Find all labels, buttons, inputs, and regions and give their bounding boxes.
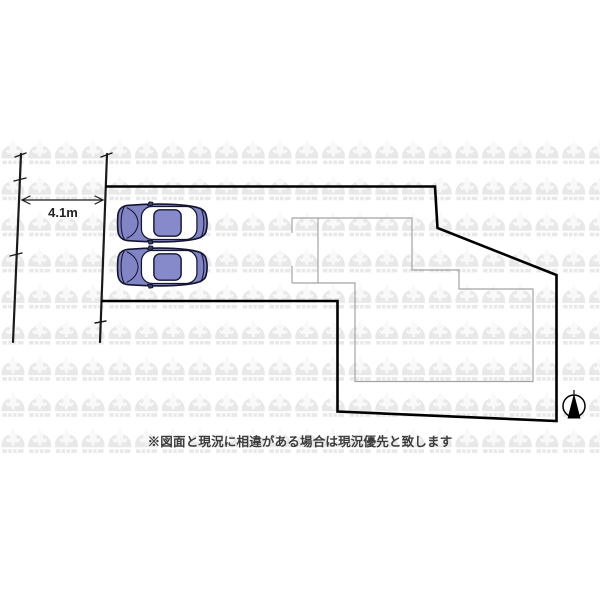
dimension-label: 4.1m: [48, 205, 78, 220]
survey-ticks: [10, 153, 112, 323]
road-edge-line-right: [100, 154, 107, 342]
site-plan: 4.1m: [0, 0, 600, 600]
road-edge-lines: [13, 154, 107, 342]
road-edge-line-left: [13, 154, 21, 342]
dimension-arrow: [22, 196, 103, 204]
car-icon: [118, 202, 208, 244]
site-plan-canvas: 4.1m ※図面と現況に相違がある場合は現況優先と致します: [0, 0, 600, 600]
survey-tick: [95, 321, 106, 323]
disclaimer-text: ※図面と現況に相違がある場合は現況優先と致します: [130, 431, 470, 447]
car-icon: [118, 246, 208, 288]
compass-icon: [563, 390, 585, 419]
